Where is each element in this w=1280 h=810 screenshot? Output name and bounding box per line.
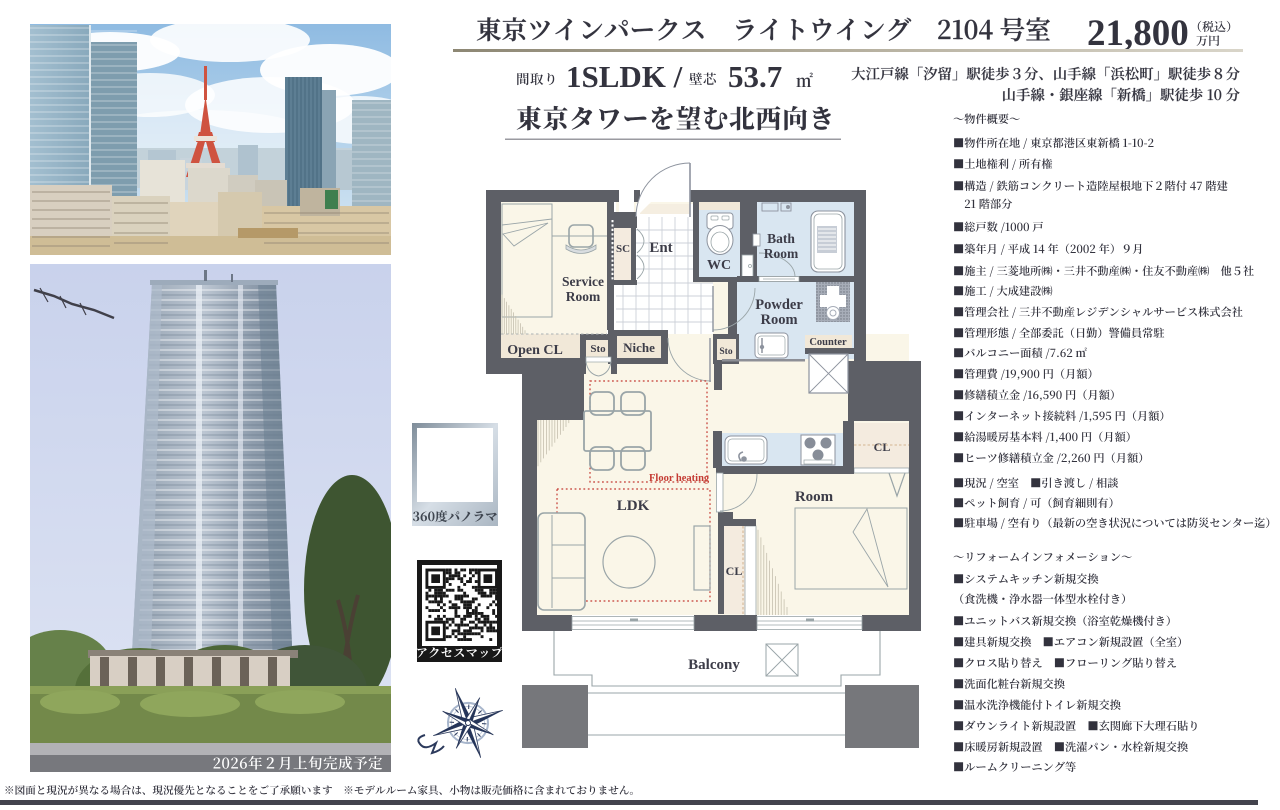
svg-text:CL: CL [874,440,891,454]
svg-text:CL: CL [726,564,743,578]
svg-text:1SLDK /: 1SLDK / [566,59,683,94]
svg-text:LDK: LDK [617,498,650,514]
svg-text:Powder: Powder [755,297,803,313]
svg-text:53.7: 53.7 [728,59,782,94]
svg-text:Room: Room [764,246,799,261]
svg-text:21,800: 21,800 [1087,13,1189,54]
svg-text:Balcony: Balcony [688,657,740,673]
svg-text:Service: Service [562,274,604,289]
svg-text:Ent: Ent [649,240,672,256]
svg-text:Room: Room [760,312,797,328]
svg-text:Sto: Sto [719,347,732,357]
svg-text:Bath: Bath [767,231,795,246]
svg-text:Room: Room [566,289,601,304]
svg-text:WC: WC [707,258,731,273]
svg-text:Floor heating: Floor heating [649,473,710,484]
svg-text:Room: Room [795,489,834,505]
svg-text:Niche: Niche [623,340,655,355]
svg-text:Counter: Counter [809,337,847,348]
svg-text:SC: SC [616,243,630,255]
svg-text:Open CL: Open CL [507,343,563,358]
svg-text:Sto: Sto [590,343,606,355]
